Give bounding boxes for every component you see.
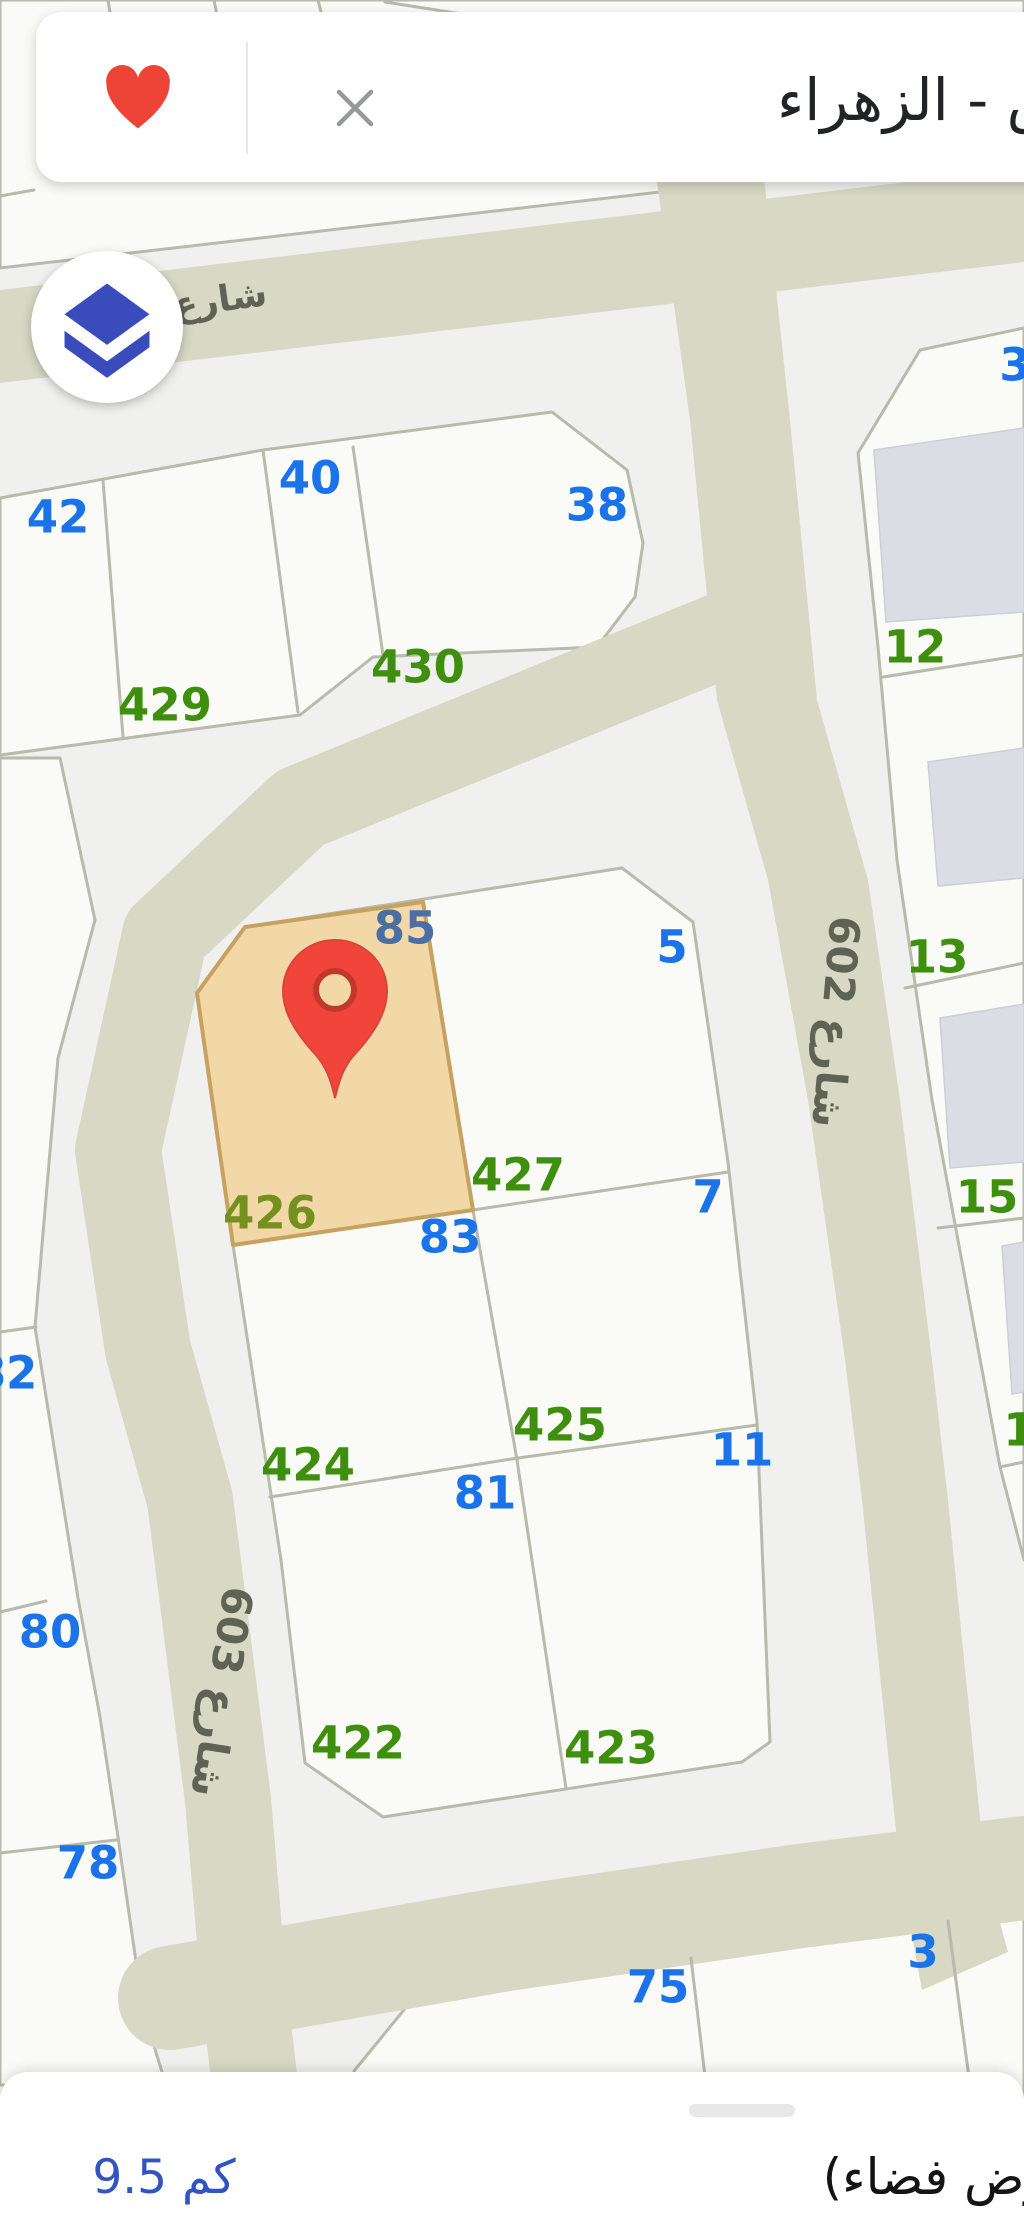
parcel-label: 424	[261, 1439, 355, 1492]
screen: شارعشارع 602شارع 60342403834294301285513…	[0, 0, 1024, 2218]
building-footprint	[874, 428, 1024, 622]
parcel-label: 427	[471, 1149, 565, 1202]
place-card: الرياض - الزهراء	[36, 12, 1024, 182]
parcel-label: 38	[566, 479, 629, 532]
layers-button[interactable]	[31, 251, 183, 403]
parcel-label: 429	[118, 679, 212, 732]
parcel-label: 426	[223, 1187, 317, 1240]
heart-icon	[102, 120, 174, 135]
parcel-label: 3	[999, 339, 1024, 392]
card-divider	[246, 42, 248, 154]
x-icon	[329, 122, 381, 137]
parcel-label: 11	[711, 1424, 774, 1477]
parcel-label: 13	[906, 931, 969, 984]
parcel-label: 82	[0, 1347, 37, 1400]
parcel-label: 425	[513, 1399, 607, 1452]
favorite-button[interactable]	[102, 64, 174, 132]
parcel-label: 15	[956, 1171, 1019, 1224]
land-status-label: (أرض فضاء)	[823, 2148, 1024, 2206]
building-footprint	[928, 748, 1024, 886]
distance-label: 9.5 كم	[44, 2150, 284, 2205]
parcel-label: 7	[692, 1171, 723, 1224]
page-title: الرياض - الزهراء	[777, 12, 1024, 182]
bottom-sheet[interactable]: 9.5 كم (أرض فضاء)	[0, 2072, 1024, 2218]
parcel-label: 83	[419, 1211, 482, 1264]
parcel-label: 80	[19, 1606, 82, 1659]
parcel-label: 1	[1003, 1404, 1024, 1457]
parcel-label: 40	[279, 452, 342, 505]
parcel-label: 85	[374, 902, 437, 955]
parcel-label: 78	[57, 1837, 120, 1890]
parcel-label: 430	[371, 641, 465, 694]
parcel-label: 3	[907, 1926, 938, 1979]
drag-handle[interactable]	[689, 2104, 795, 2117]
parcel-label: 422	[311, 1717, 405, 1770]
parcel-label: 81	[454, 1467, 517, 1520]
parcel-label: 42	[27, 491, 90, 544]
layers-icon	[48, 373, 166, 388]
close-button[interactable]	[324, 78, 386, 140]
parcel-label: 75	[627, 1961, 690, 2014]
building-footprint	[940, 1004, 1024, 1168]
parcel-label: 12	[884, 621, 947, 674]
parcel-label: 423	[564, 1722, 658, 1775]
parcel-label: 5	[656, 921, 687, 974]
